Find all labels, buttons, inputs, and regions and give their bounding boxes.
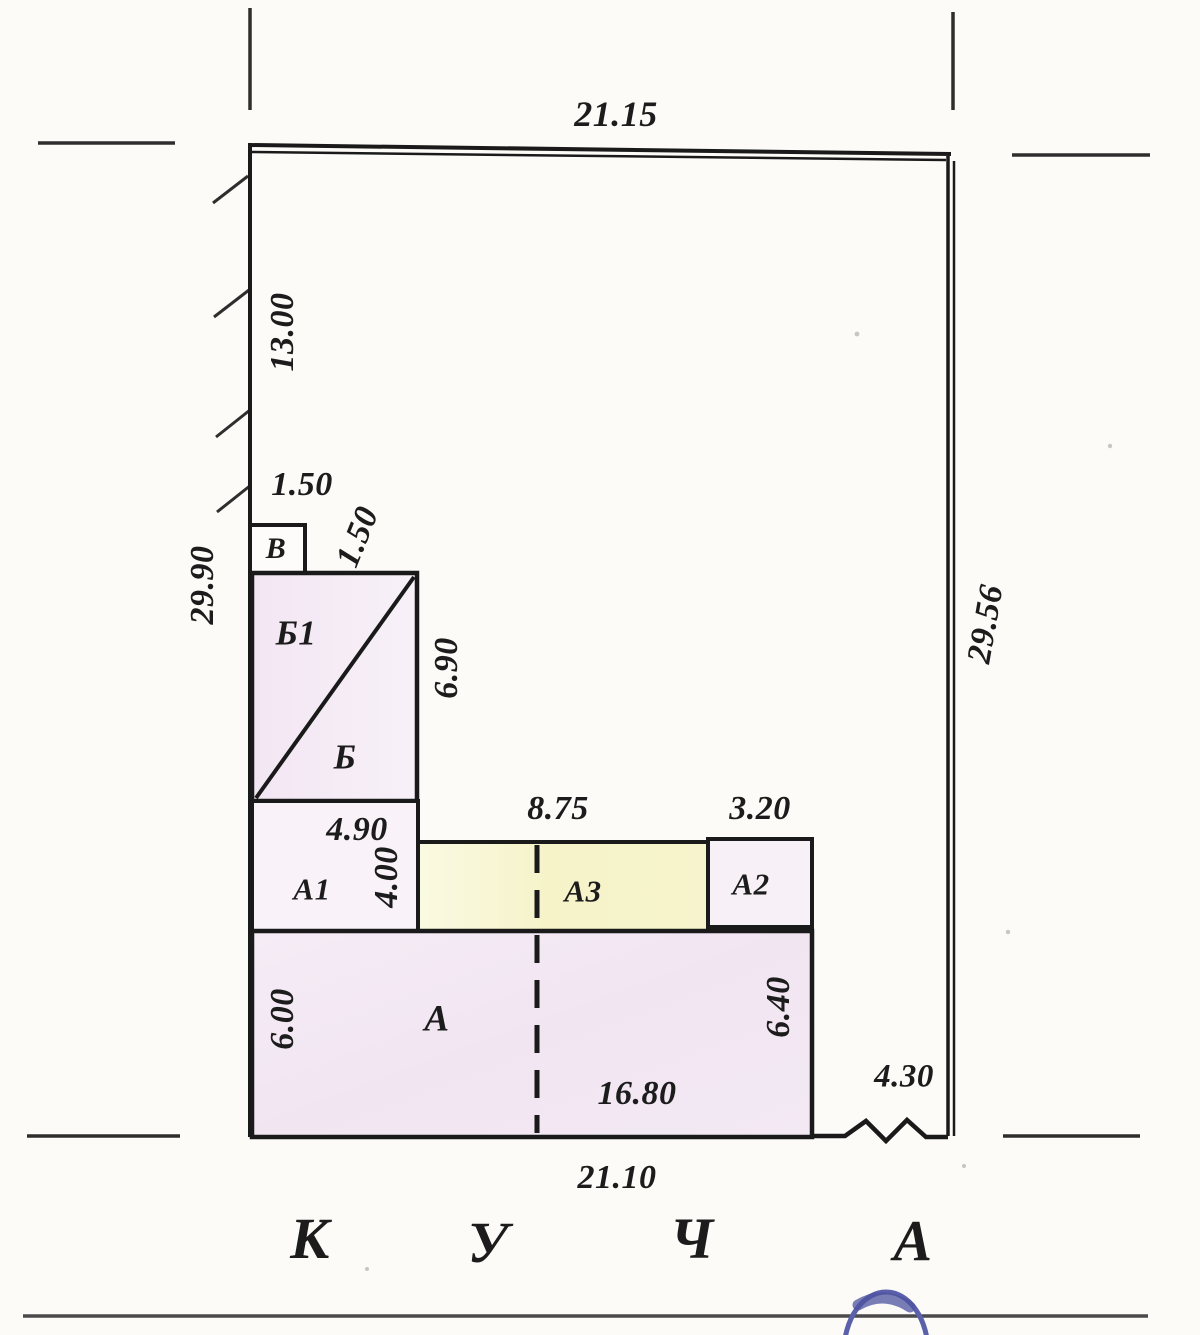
- dim-a-right-side: 6.40: [762, 976, 796, 1038]
- building-b-label: Б: [334, 740, 357, 775]
- dim-top-boundary: 21.15: [574, 96, 658, 132]
- street-name-letter-3: Ч: [670, 1210, 714, 1268]
- dim-a1-right-side: 4.00: [370, 846, 404, 908]
- dim-a3-top: 8.75: [527, 792, 589, 826]
- dim-b-right-side: 6.90: [430, 637, 464, 699]
- stamp-arc: [844, 1292, 928, 1335]
- building-v-label: В: [266, 534, 287, 564]
- site-plan-canvas: 21.15 13.00 1.50 1.50 29.90 6.90 4.90 8.…: [0, 0, 1200, 1335]
- veranda-strip-outline: [418, 842, 708, 931]
- building-a3-label: А3: [564, 876, 601, 907]
- dim-a1-top: 4.90: [326, 813, 388, 847]
- dim-bottom-right-gap: 4.30: [874, 1061, 934, 1094]
- street-name-letter-1: К: [290, 1210, 330, 1268]
- street-name-letter-4: А: [893, 1212, 932, 1270]
- building-a-label: А: [424, 1001, 449, 1038]
- dim-bottom-boundary: 21.10: [578, 1161, 657, 1195]
- dim-left-total: 29.90: [186, 546, 220, 625]
- building-b1-label: Б1: [276, 616, 317, 651]
- building-a1-label: А1: [293, 874, 330, 905]
- dim-v-width: 1.50: [271, 468, 333, 502]
- dim-a-bottom: 16.80: [598, 1077, 677, 1111]
- dim-left-upper-segment: 13.00: [266, 293, 300, 372]
- street-name-letter-2: У: [468, 1214, 509, 1272]
- site-plan-drawing: [0, 0, 1200, 1335]
- dim-a2-top: 3.20: [729, 792, 791, 826]
- left-boundary-slash-ticks: [213, 176, 251, 512]
- dim-a-left-side: 6.00: [266, 988, 300, 1050]
- building-a2-label: А2: [732, 869, 769, 900]
- building-a-outline: [252, 931, 812, 1137]
